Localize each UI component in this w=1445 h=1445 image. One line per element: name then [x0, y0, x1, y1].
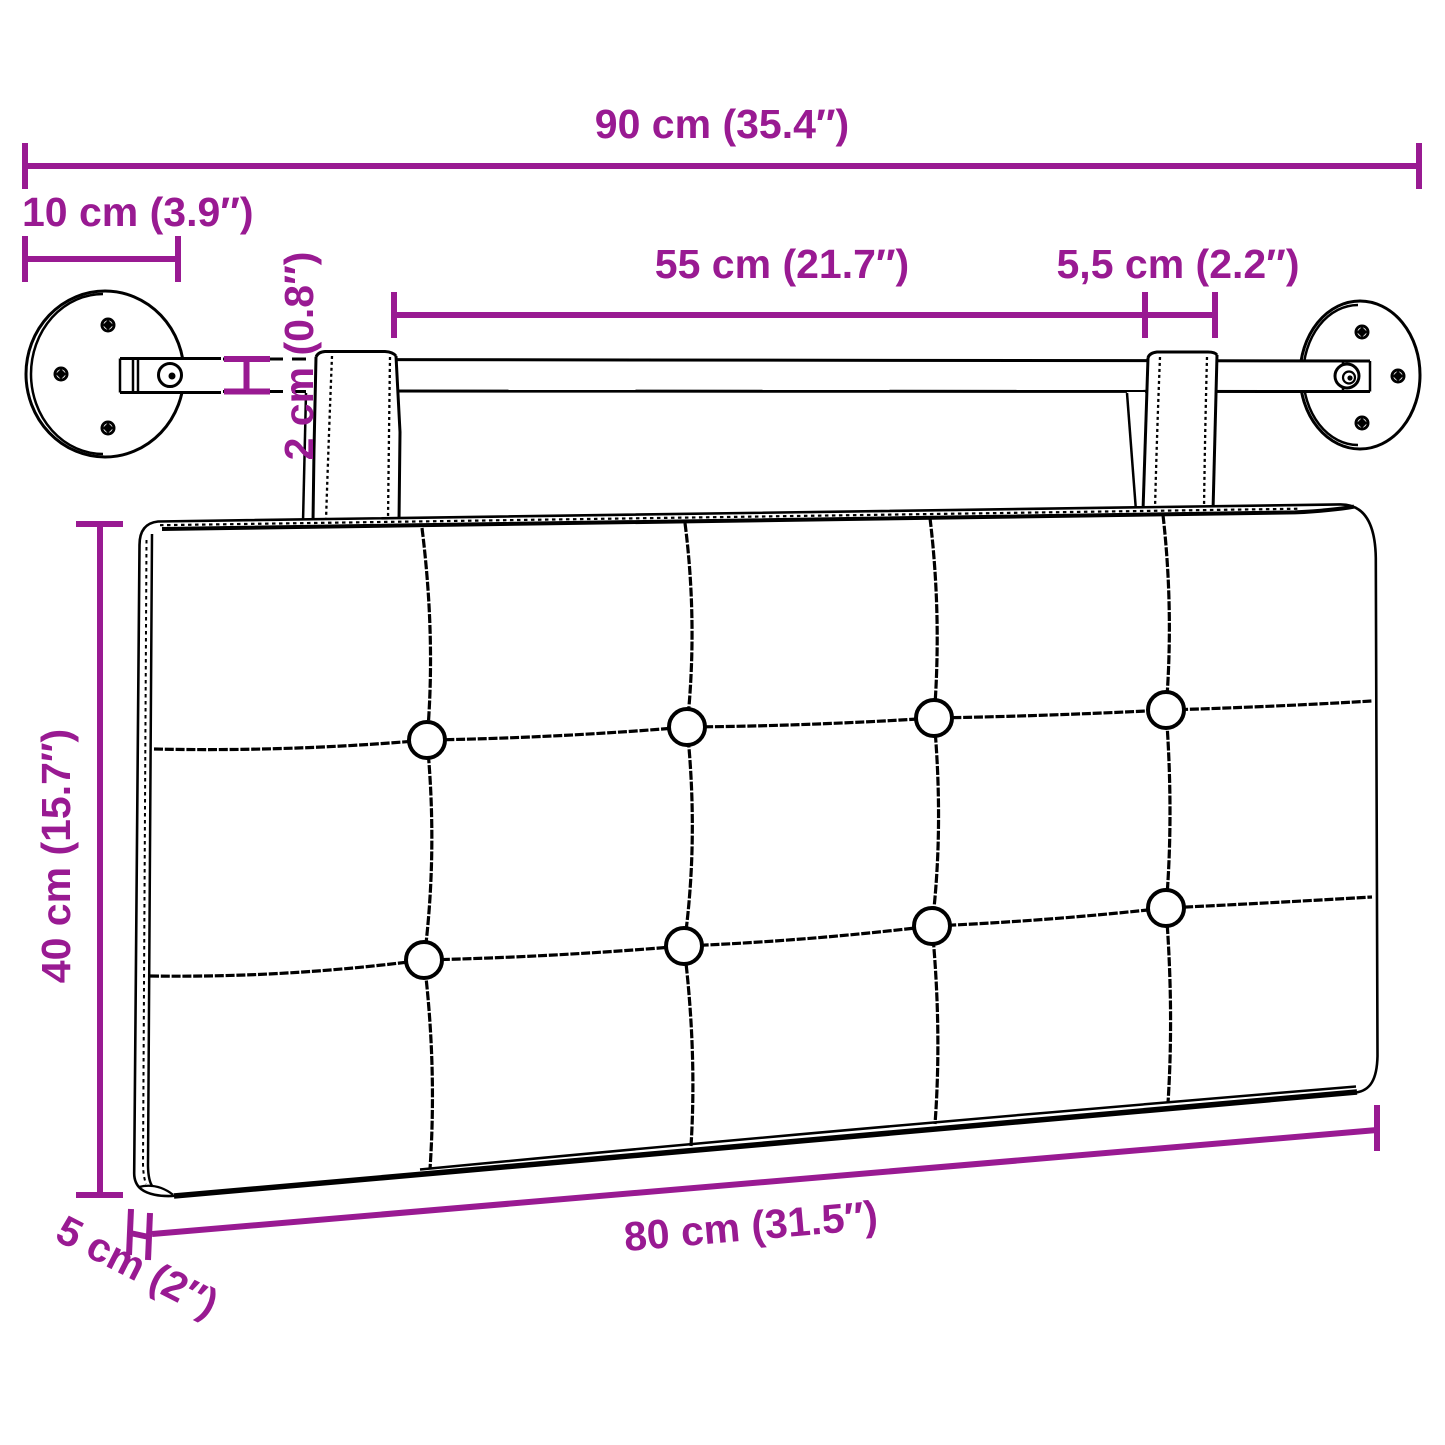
svg-text:90 cm (35.4″): 90 cm (35.4″): [595, 101, 849, 147]
svg-text:2 cm (0.8″): 2 cm (0.8″): [276, 252, 322, 461]
svg-text:5,5 cm (2.2″): 5,5 cm (2.2″): [1057, 241, 1300, 287]
svg-text:40 cm (15.7″): 40 cm (15.7″): [33, 729, 79, 983]
svg-text:55 cm (21.7″): 55 cm (21.7″): [655, 241, 909, 287]
svg-text:10 cm (3.9″): 10 cm (3.9″): [22, 189, 254, 235]
